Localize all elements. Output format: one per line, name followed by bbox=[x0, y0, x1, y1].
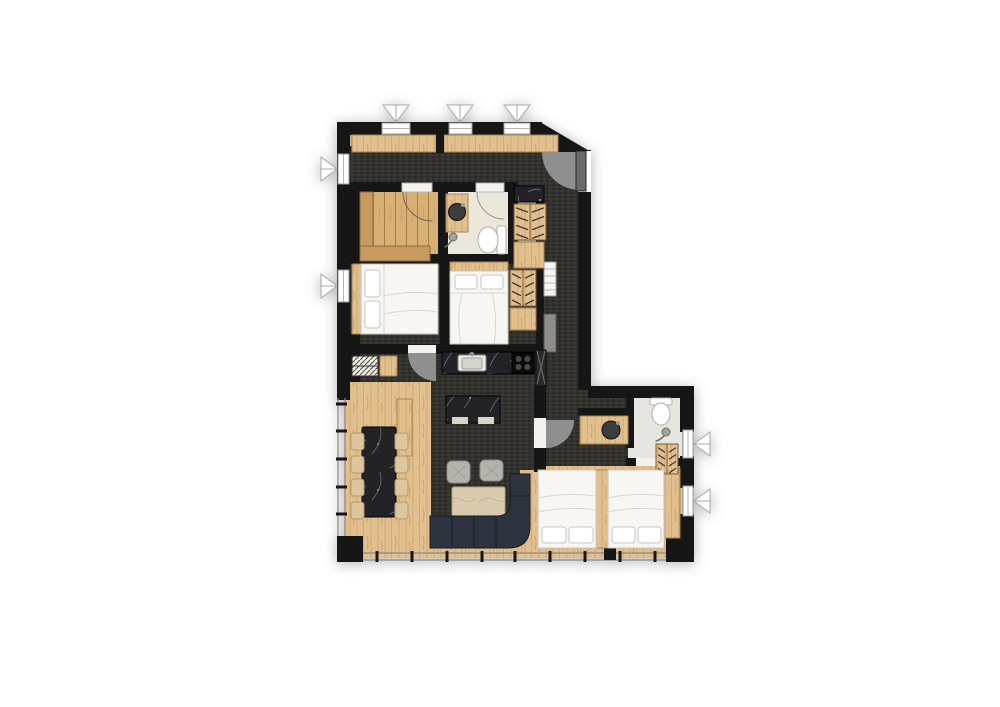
window-right-1 bbox=[683, 430, 693, 458]
toilet1-bowl bbox=[478, 227, 498, 253]
window-bench-right bbox=[444, 135, 558, 152]
window-top-3 bbox=[504, 123, 530, 134]
bedroom1-dresser-cabinet bbox=[380, 356, 397, 376]
dining-chair-5 bbox=[395, 433, 408, 450]
bedroom3-door-opening bbox=[534, 418, 546, 448]
dining-chair-1 bbox=[351, 433, 364, 450]
hall-counter bbox=[514, 186, 544, 202]
dining-chair-3 bbox=[351, 479, 364, 496]
glass-wall-left bbox=[338, 398, 345, 538]
window-top-2 bbox=[449, 123, 472, 134]
window-top-1 bbox=[382, 123, 410, 134]
window-right-1-fan bbox=[694, 432, 710, 456]
bench-divider bbox=[436, 134, 444, 153]
floor-plan-page bbox=[0, 0, 1000, 707]
dining-chair-7 bbox=[395, 479, 408, 496]
bedroom3-sink-faucet bbox=[616, 421, 620, 425]
sauna-bench-bottom bbox=[360, 246, 430, 261]
bedroom3-bed-1-pillow-2 bbox=[569, 527, 593, 543]
dining-table bbox=[362, 427, 396, 517]
bathroom1-shower-head bbox=[449, 233, 457, 241]
wall-right-lower-b bbox=[680, 456, 694, 488]
wall-right-lower-a bbox=[680, 386, 694, 432]
kitchen-sink-basin bbox=[462, 358, 482, 369]
window-fan-2 bbox=[447, 105, 473, 122]
window-bench-left bbox=[352, 135, 436, 152]
hall-locker bbox=[544, 314, 556, 352]
window-left-1-fan bbox=[321, 157, 337, 181]
living-console-seat-1 bbox=[452, 417, 468, 424]
entry-door-leaf bbox=[576, 151, 586, 191]
bedroom2-pillow-1 bbox=[455, 275, 477, 289]
bathroom1-door-opening bbox=[476, 183, 504, 192]
window-fan-1 bbox=[383, 105, 409, 122]
dining-chair-8 bbox=[395, 502, 408, 519]
pier-bottom-left bbox=[337, 536, 363, 562]
window-fan-3 bbox=[504, 105, 530, 122]
wall-vanity3 bbox=[578, 408, 628, 416]
bedroom3-nightstand bbox=[596, 470, 608, 548]
bedroom1-door-opening bbox=[408, 345, 436, 354]
living-console-seat-2 bbox=[478, 417, 494, 424]
bedroom1-pillow-1 bbox=[365, 270, 380, 297]
bedroom1-pillow-2 bbox=[365, 301, 380, 328]
dining-chair-6 bbox=[395, 456, 408, 473]
bathroom1-sink-faucet bbox=[461, 203, 465, 207]
window-right-2 bbox=[683, 486, 693, 516]
wall-sauna-left bbox=[350, 190, 360, 262]
wall-bedroom-divider bbox=[440, 258, 450, 350]
pier-bottom-right bbox=[666, 536, 694, 562]
bedroom2-pillow-2 bbox=[481, 275, 503, 289]
wall-bedroom3-top bbox=[588, 386, 694, 398]
sauna-door-opening bbox=[402, 183, 432, 192]
bathroom2-door-opening bbox=[636, 458, 656, 466]
window-right-2-fan bbox=[694, 489, 710, 513]
dining-chair-2 bbox=[351, 456, 364, 473]
bedroom2-cabinet bbox=[510, 308, 536, 330]
kitchen-faucet bbox=[470, 352, 474, 356]
bedroom3-bed-2-pillow-1 bbox=[612, 527, 635, 543]
window-left-2-fan bbox=[321, 274, 337, 298]
bedroom2-wardrobe bbox=[510, 270, 536, 306]
hall-wardrobe bbox=[514, 204, 546, 240]
bedroom3-bed-2-pillow-2 bbox=[638, 527, 661, 543]
hall-cabinet bbox=[514, 242, 544, 268]
window-left-2 bbox=[338, 270, 349, 302]
bedroom3-side-ledge bbox=[664, 468, 680, 538]
dining-chair-4 bbox=[351, 502, 364, 519]
hall-shelf-unit bbox=[544, 262, 556, 296]
bedroom3-bed-1-pillow-1 bbox=[542, 527, 566, 543]
bedroom2-headboard bbox=[450, 262, 508, 271]
toilet2-bowl bbox=[652, 403, 670, 425]
kitchen-cooktop bbox=[512, 353, 534, 373]
coffee-table bbox=[452, 487, 505, 518]
bathroom2-shower-head bbox=[662, 428, 670, 436]
bedroom1-dresser bbox=[352, 356, 378, 376]
window-left-1 bbox=[338, 154, 349, 184]
bedroom1-headboard bbox=[352, 264, 361, 334]
floor-plan-canvas bbox=[0, 0, 1000, 707]
